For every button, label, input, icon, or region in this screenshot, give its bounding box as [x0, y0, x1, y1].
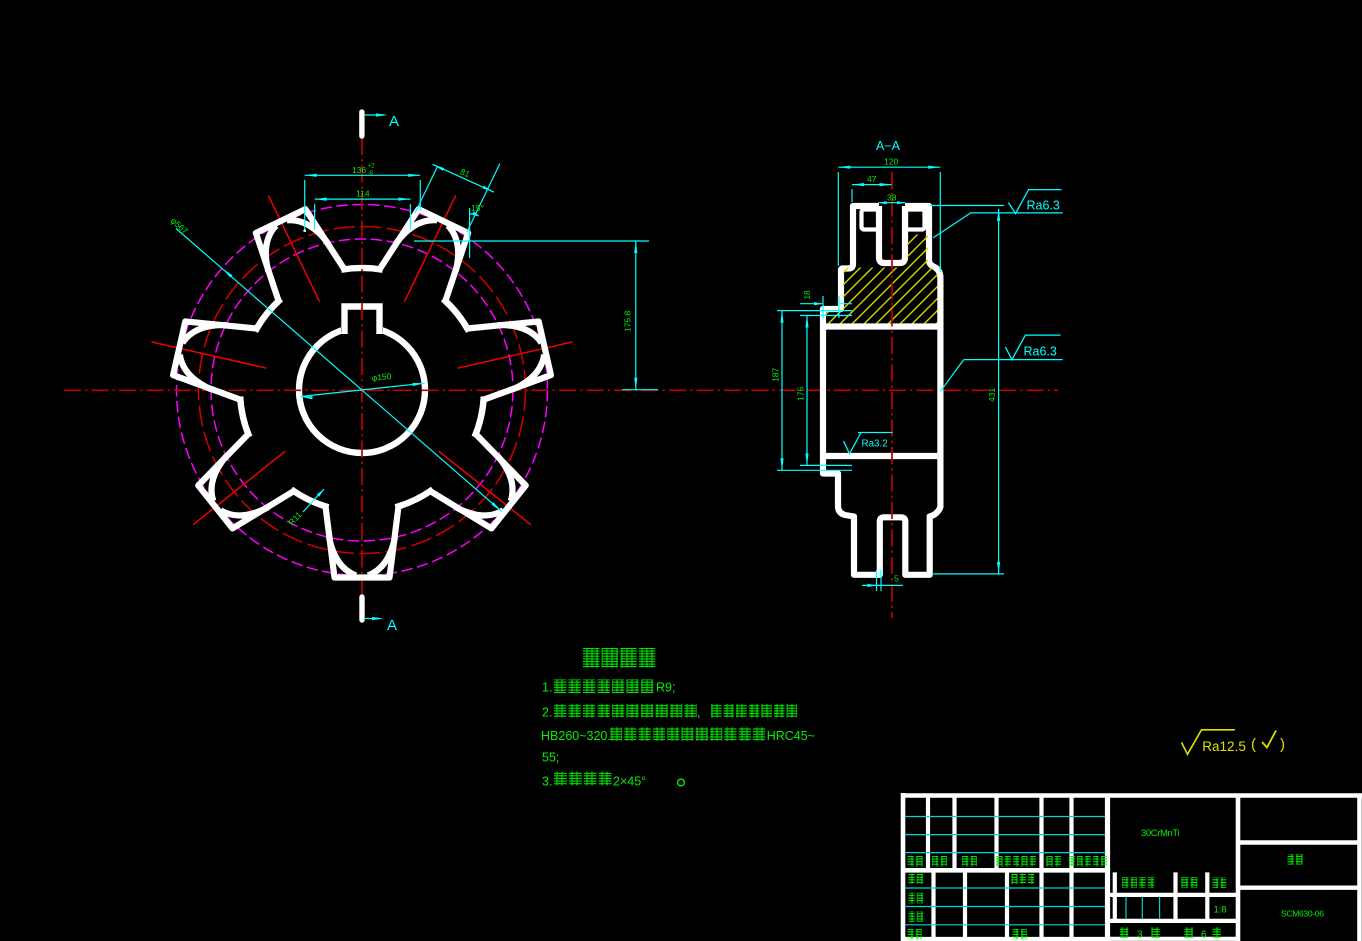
- svg-text:38: 38: [887, 193, 897, 203]
- svg-text:175.8: 175.8: [623, 310, 633, 332]
- svg-text:18: 18: [803, 290, 812, 299]
- svg-text:SCM630-06: SCM630-06: [1281, 909, 1324, 919]
- svg-text:3: 3: [1137, 930, 1143, 941]
- svg-text:HRC45~: HRC45~: [767, 729, 815, 743]
- svg-text:Ra12.5: Ra12.5: [1202, 739, 1246, 754]
- svg-text:R9;: R9;: [656, 681, 675, 695]
- svg-text:A: A: [387, 617, 397, 634]
- svg-text:187: 187: [771, 368, 781, 382]
- svg-text:30CrMnTi: 30CrMnTi: [1141, 828, 1179, 839]
- svg-text:(: (: [1251, 736, 1256, 753]
- svg-text:1:8: 1:8: [1214, 905, 1227, 916]
- svg-text:HB260~320.: HB260~320.: [541, 729, 611, 743]
- svg-text:431: 431: [987, 388, 997, 402]
- svg-text:114: 114: [356, 189, 370, 199]
- svg-text:,: ,: [697, 706, 700, 720]
- svg-text:Ra6.3: Ra6.3: [1027, 199, 1060, 213]
- svg-text:120: 120: [884, 157, 898, 167]
- svg-text:3.: 3.: [542, 775, 552, 789]
- svg-text:Ra3.2: Ra3.2: [862, 439, 888, 450]
- svg-text:φ150: φ150: [371, 371, 392, 383]
- svg-text:1.: 1.: [542, 681, 552, 695]
- svg-text:A−A: A−A: [876, 139, 901, 153]
- svg-text:Ra6.3: Ra6.3: [1024, 344, 1057, 358]
- svg-text:A: A: [389, 113, 399, 130]
- svg-text:-8: -8: [368, 170, 374, 176]
- svg-text:6: 6: [1201, 930, 1207, 941]
- svg-text:): ): [1280, 736, 1285, 753]
- svg-text:+2: +2: [368, 164, 376, 170]
- svg-text:136: 136: [352, 165, 366, 175]
- svg-text:175: 175: [796, 387, 806, 401]
- svg-text:2.: 2.: [542, 706, 552, 720]
- svg-text:5: 5: [894, 574, 899, 584]
- svg-text:2×45°: 2×45°: [613, 775, 646, 789]
- svg-text:55;: 55;: [542, 751, 559, 765]
- svg-text:15°: 15°: [471, 203, 484, 213]
- svg-text:47: 47: [867, 174, 877, 184]
